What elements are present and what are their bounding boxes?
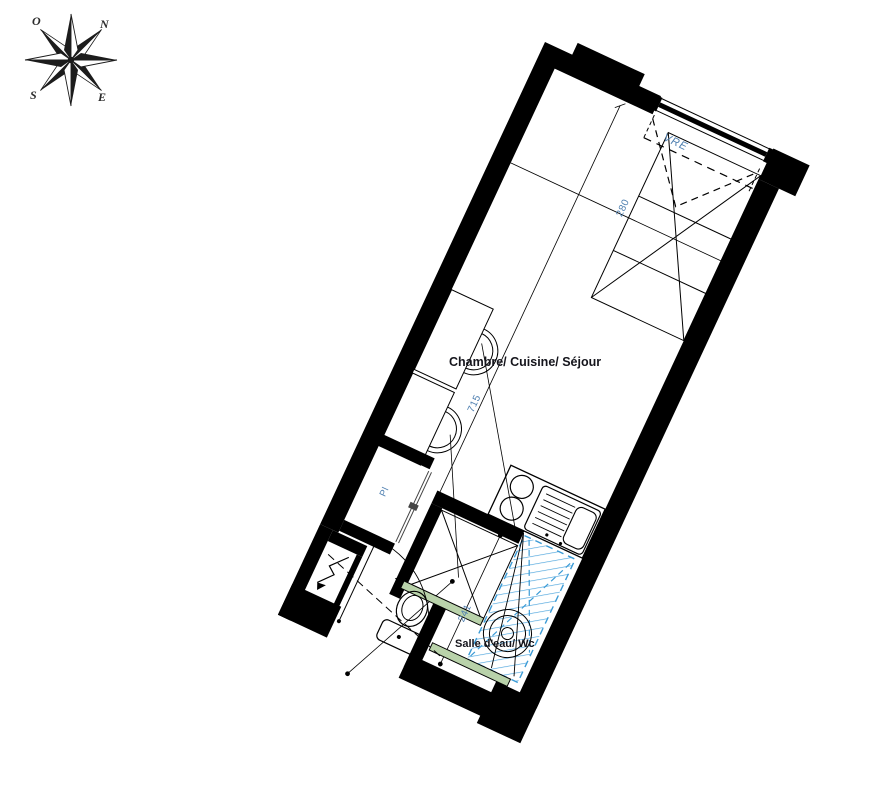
- floor-plan-page: O N S E: [0, 0, 877, 800]
- window-swing-dashed: [623, 119, 760, 232]
- compass-east-label: E: [98, 90, 106, 105]
- duct-arrow-icon: [314, 581, 326, 592]
- compass-west-label: O: [32, 14, 41, 29]
- compass-north-label: N: [100, 17, 109, 32]
- bathroom-label: Salle d'eau/ Wc: [455, 638, 535, 650]
- compass-south-label: S: [30, 88, 37, 103]
- kitchen-unit: [488, 465, 605, 558]
- main-room-label: Chambre/ Cuisine/ Séjour: [449, 355, 601, 369]
- compass-rose: O N S E: [18, 4, 122, 112]
- sink-drainer: [532, 494, 575, 537]
- floor-plan-drawing: [231, 15, 843, 800]
